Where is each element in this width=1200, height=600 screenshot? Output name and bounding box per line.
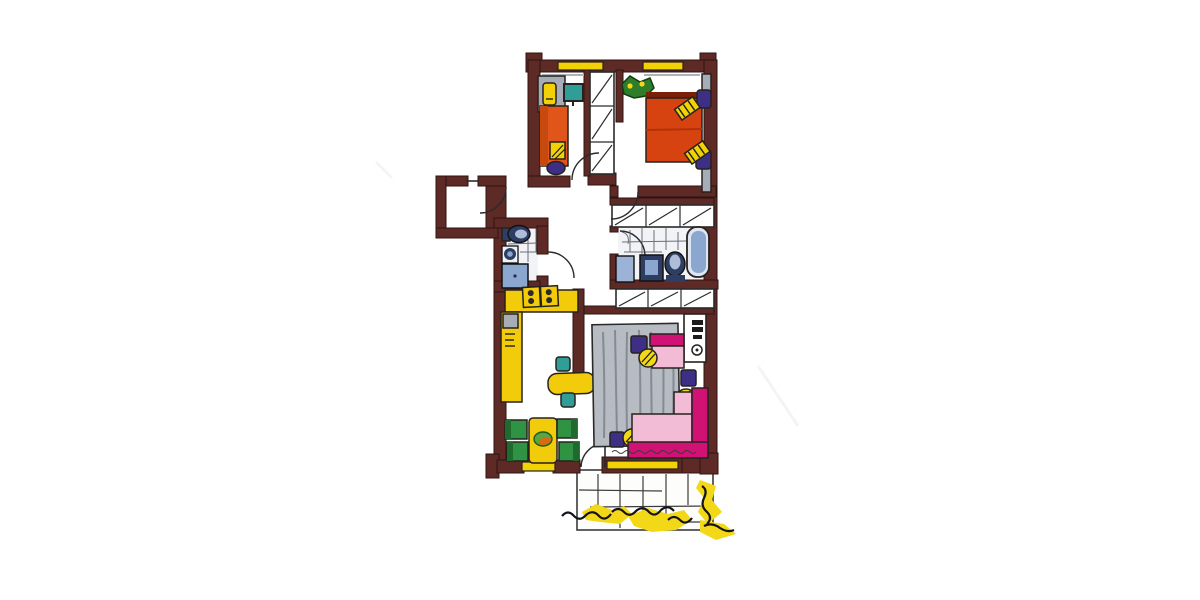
wall-segment <box>553 460 580 473</box>
lamp-1 <box>639 349 657 367</box>
bed-foot-stool <box>547 162 565 175</box>
sofa-seat-bottom <box>632 414 692 444</box>
breakfast-table-group <box>548 372 596 395</box>
window-bedroom2 <box>643 62 683 70</box>
wc-basin-bowl <box>507 251 513 257</box>
wall-segment <box>588 173 616 185</box>
wall-entry-bottom <box>436 228 498 238</box>
bed-fold-line <box>646 129 702 130</box>
washing-machine <box>616 256 634 282</box>
side-table-2 <box>681 370 696 386</box>
sofa-back-bottom <box>628 442 708 458</box>
wall-closet-column <box>584 70 590 176</box>
stove <box>522 286 558 308</box>
window-bedroom1 <box>558 62 603 70</box>
chair-back <box>573 442 579 461</box>
wc-door-arc <box>548 252 574 278</box>
wall-bedroom2-left <box>616 70 623 122</box>
single-bed-shading <box>540 106 548 166</box>
kitchen-chair-bottom <box>561 393 575 407</box>
chair-back <box>505 420 511 439</box>
plant-bloom <box>627 83 632 88</box>
floorplan-drawing <box>0 0 1200 600</box>
wc-shower-drain <box>513 274 516 277</box>
living-room <box>592 314 708 458</box>
dining-corner <box>505 418 579 463</box>
window-living <box>607 461 678 469</box>
monitor <box>564 84 583 101</box>
wall-bedroom1-bottom <box>528 176 570 187</box>
bath-toilet-tank <box>666 275 685 282</box>
bedroom-master <box>622 74 711 192</box>
vanity-basin <box>645 260 658 275</box>
wall-segment <box>497 460 524 473</box>
breakfast-table <box>548 372 596 395</box>
desk-lamp <box>543 83 556 105</box>
wall-segment <box>610 186 618 197</box>
kitchen-chair-top <box>556 357 570 371</box>
side-table-3 <box>610 432 624 447</box>
scanned-floorplan-page <box>0 0 1200 600</box>
wall-segment <box>610 198 714 205</box>
chair-back <box>507 442 513 461</box>
hifi-stack <box>692 320 703 339</box>
wall-entry-top <box>478 176 506 186</box>
bedroom-small <box>538 76 583 175</box>
wc-toilet-seat <box>515 230 527 239</box>
kitchen-sink <box>503 314 518 328</box>
chair-back <box>571 419 577 438</box>
bath-toilet-seat <box>670 255 681 270</box>
wall-wc-right <box>537 226 548 254</box>
speaker-dot <box>696 349 699 352</box>
bathtub-basin <box>691 231 706 273</box>
plant-bloom <box>639 81 644 86</box>
armchair-back <box>650 334 684 346</box>
